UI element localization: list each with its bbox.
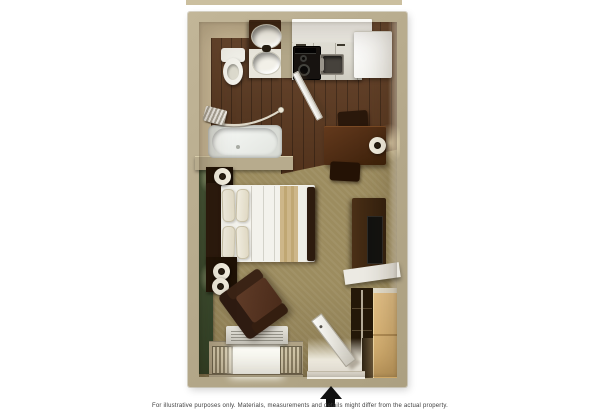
burner-small [300, 55, 307, 62]
bathtub-drain [236, 145, 240, 149]
disclaimer-caption: For illustrative purposes only. Material… [0, 403, 600, 409]
window-blind-right [280, 346, 302, 374]
kitchen-faucet [320, 58, 324, 71]
bed-runner [280, 186, 298, 262]
cabinet-handle [337, 44, 345, 46]
window-pane [233, 347, 280, 375]
television [367, 216, 383, 264]
toilet-bowl-inner [227, 64, 239, 80]
pillow [235, 189, 249, 222]
bathroom-faucet [262, 45, 271, 52]
table-lamp [369, 137, 386, 154]
duvet-fold [263, 186, 264, 261]
closet-shelf-line [352, 308, 372, 309]
wall-top-strip [186, 0, 402, 5]
closet-panel-seam [373, 334, 397, 336]
window-blind-left [212, 346, 233, 374]
duvet-fold [251, 186, 252, 261]
bed-foot-board [307, 187, 315, 261]
entry-threshold [307, 371, 365, 379]
kitchen-sink-basin [323, 56, 342, 73]
bed-sheet-strip [298, 186, 307, 262]
cooktop-control-panel [295, 48, 316, 54]
window-rail [209, 374, 303, 377]
bathroom-sink-lower [252, 51, 281, 75]
nightstand-lamp [214, 168, 231, 185]
headboard [206, 183, 221, 264]
closet-shelf-line [352, 330, 372, 331]
door-handle [319, 325, 323, 329]
floor-plan-image: For illustrative purposes only. Material… [0, 0, 600, 420]
refrigerator [354, 31, 392, 78]
dining-chair-south [330, 161, 361, 182]
pillow [235, 226, 249, 259]
pillow [221, 189, 235, 222]
duvet-fold [274, 186, 275, 261]
pillow [221, 226, 235, 259]
